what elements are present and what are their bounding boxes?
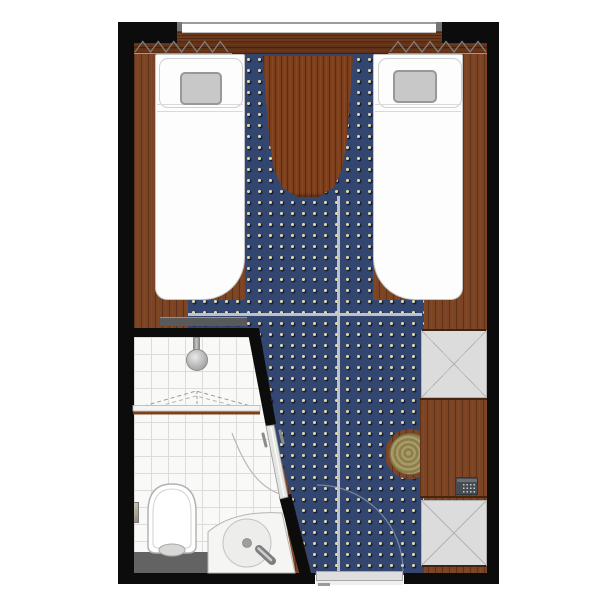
wardrobe-upper (421, 329, 487, 398)
entrance-door-stop (318, 583, 330, 586)
pillow-left (180, 72, 222, 105)
toilet-cistern-bench (129, 552, 208, 574)
carpet-seam-vertical (337, 196, 340, 574)
wall-top-left (118, 22, 177, 43)
safe-keypad (462, 483, 476, 493)
luggage-bench (160, 317, 247, 326)
wardrobe-lower (421, 500, 487, 567)
wall-top-right (442, 22, 499, 43)
bed-right-fold2 (375, 111, 461, 112)
shower-head-icon (186, 349, 208, 371)
wall-left (118, 22, 134, 584)
wall-bottom-left (118, 573, 315, 584)
wall-right (487, 22, 499, 584)
headboard-shelf (134, 42, 488, 54)
carpet-seam-horizontal (188, 313, 422, 316)
wall-bottom-right (404, 573, 499, 584)
safe (455, 477, 478, 495)
floor-plan (0, 0, 600, 600)
window (182, 22, 436, 33)
safe-handle (457, 479, 477, 482)
bed-left-fold2 (157, 111, 243, 112)
bathroom-wall-top (118, 328, 258, 337)
pillow-right (393, 70, 437, 103)
bed-right-fold (375, 104, 461, 105)
entrance-door (316, 571, 403, 581)
